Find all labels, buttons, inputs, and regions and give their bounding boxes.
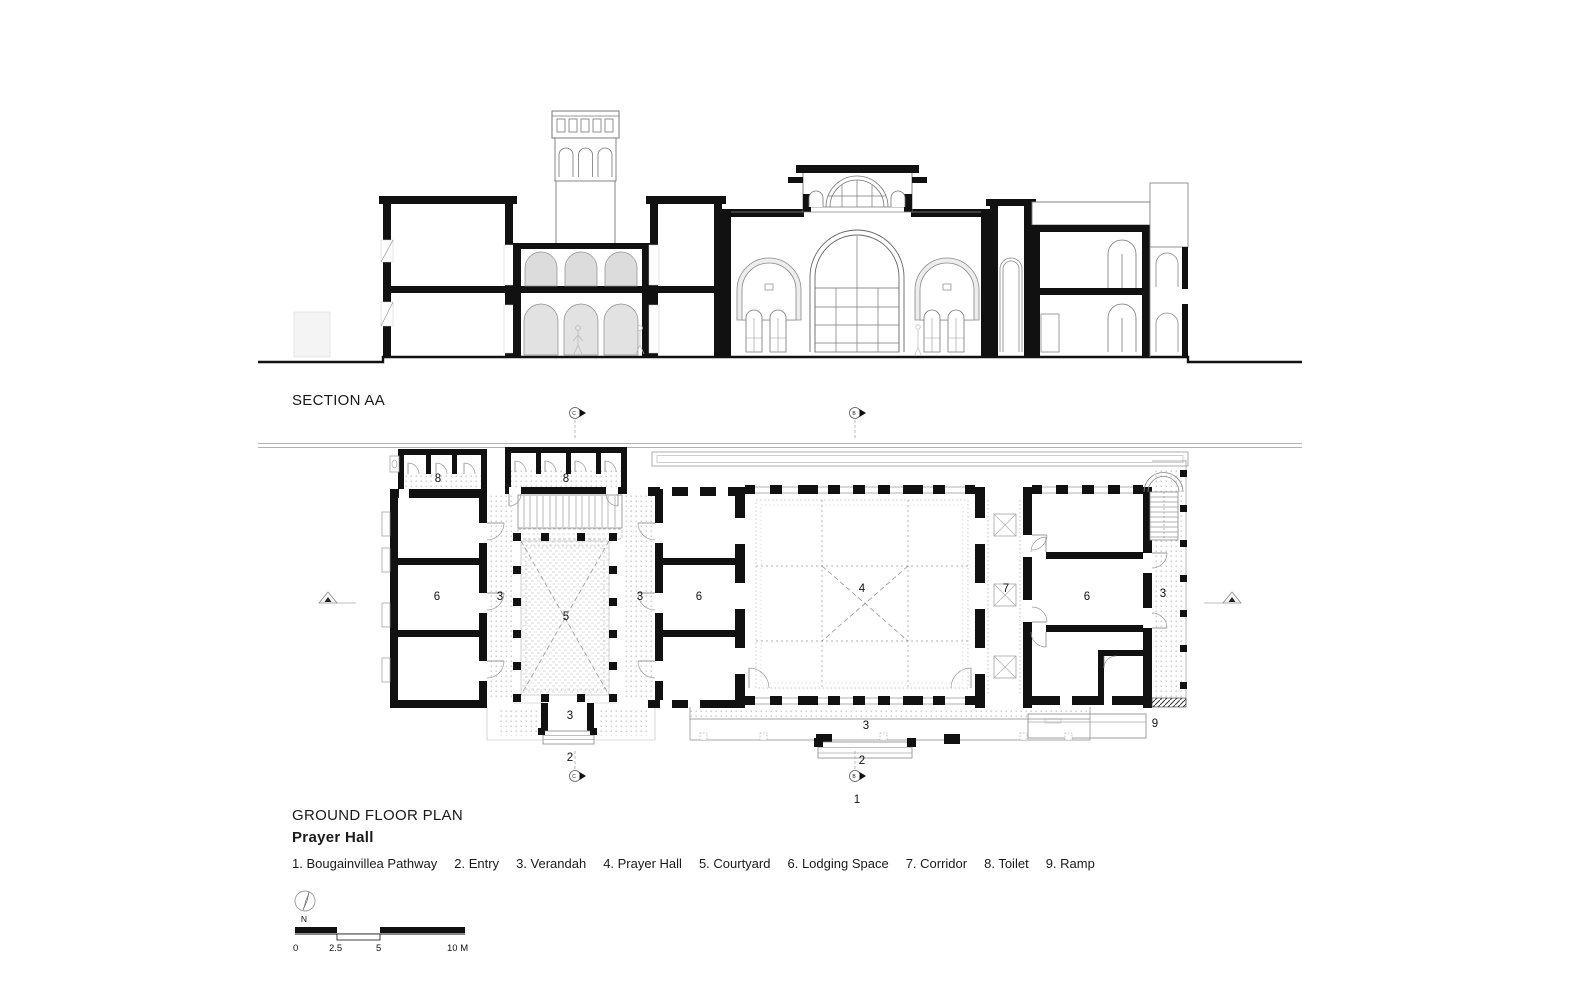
stair-north [518,495,622,539]
plan-subtitle: Prayer Hall [292,829,374,846]
svg-text:C: C [572,774,576,780]
section-arcade [513,243,650,357]
room-label-3: 3 [1160,588,1166,600]
drawing-sheet: 88635364763323291 CBCB N 0 2.5 5 10 M SE… [0,0,1582,989]
floor-plan: 88635364763323291 CBCB [258,408,1302,807]
room-label-3: 3 [863,720,869,732]
legend-item: 5. Courtyard [699,856,771,871]
room-label-8: 8 [563,473,569,485]
room-label-6: 6 [434,591,440,603]
room-label-6: 6 [1084,591,1090,603]
section-tower [552,111,619,243]
legend-item: 2. Entry [454,856,499,871]
section-marker-C: C [570,408,587,441]
room-label-3: 3 [497,591,503,603]
drawing-canvas: 88635364763323291 CBCB N 0 2.5 5 10 M [0,0,1582,989]
corridor [988,487,1047,708]
section-prayer-hall [718,165,994,357]
legend-item: 1. Bougainvillea Pathway [292,856,437,871]
section-narrow-bay [986,199,1036,357]
room-label-6: 6 [696,591,702,603]
elevation-marker-A [319,592,356,603]
section-stair-tower [1150,183,1188,357]
site-line [258,444,1302,448]
room-label-8: 8 [435,473,441,485]
section-left-block [379,196,517,357]
plinth-band [652,452,1188,466]
legend: 1. Bougainvillea Pathway2. Entry3. Veran… [292,856,1095,871]
legend-item: 8. Toilet [984,856,1029,871]
room-label-4: 4 [859,583,866,595]
room-label-7: 7 [1003,583,1009,595]
hall-colonnade-columns [745,485,975,705]
side-arches [737,258,979,355]
room-label-3: 3 [567,710,573,722]
room-label-2: 2 [859,755,865,767]
section-title: SECTION AA [292,392,385,409]
lodging-east-wing [1030,485,1167,708]
legend-item: 6. Lodging Space [787,856,888,871]
lodging-west-wing [382,489,504,708]
room-label-2: 2 [567,752,573,764]
scale-label-0: 0 [293,943,298,954]
scale-label-3: 10 M [447,943,468,954]
room-label-9: 9 [1152,718,1158,730]
scale-label-2: 5 [376,943,381,954]
legend-item: 4. Prayer Hall [603,856,682,871]
svg-text:C: C [572,411,576,417]
elevation-marker-A [1204,592,1241,603]
scale-bar: 0 2.5 5 10 M [293,927,468,954]
north-label: N [301,914,307,924]
plan-title: GROUND FLOOR PLAN [292,807,463,824]
room-label-3: 3 [637,591,643,603]
section-mid-block [646,196,726,357]
legend-item: 7. Corridor [906,856,967,871]
room-label-5: 5 [563,611,569,623]
prayer-hall [735,485,985,708]
clerestory [788,165,927,212]
elevation-markers [319,592,1241,603]
section-marker-B: B [850,408,867,441]
north-arrow: N [295,891,315,924]
legend-item: 3. Verandah [516,856,586,871]
section-right-block [1028,202,1154,357]
scale-label-1: 2.5 [329,943,342,954]
section-drawing [258,111,1302,362]
legend-item: 9. Ramp [1046,856,1095,871]
room-label-1: 1 [854,794,860,806]
central-arch [810,230,904,352]
ramp [1028,714,1146,738]
